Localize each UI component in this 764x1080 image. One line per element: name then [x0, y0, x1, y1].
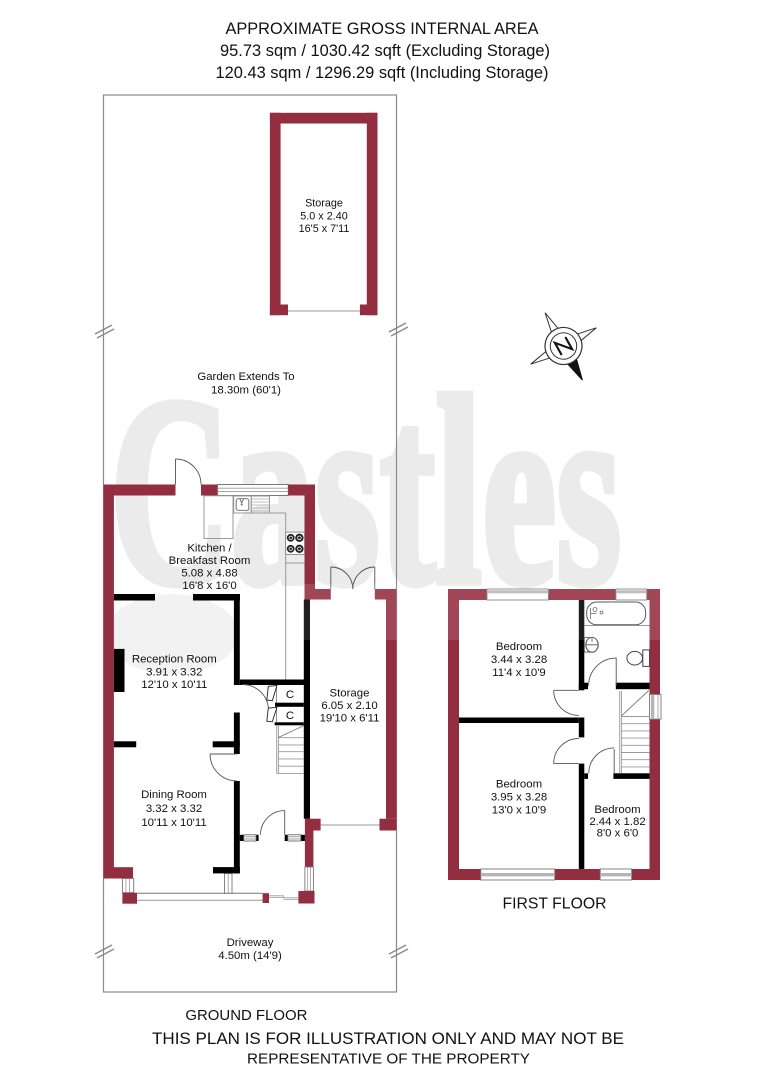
svg-text:10'11 x 10'11: 10'11 x 10'11 — [141, 817, 206, 829]
svg-text:GROUND FLOOR: GROUND FLOOR — [185, 1007, 307, 1024]
svg-text:120.43 sqm / 1296.29 sqft (Inc: 120.43 sqm / 1296.29 sqft (Including Sto… — [216, 64, 549, 82]
svg-text:13'0 x 10'9: 13'0 x 10'9 — [492, 805, 546, 817]
svg-text:16'8 x 16'0: 16'8 x 16'0 — [182, 580, 236, 592]
svg-text:4.50m (14'9): 4.50m (14'9) — [218, 950, 282, 962]
svg-text:16'5 x 7'11: 16'5 x 7'11 — [299, 223, 350, 235]
svg-text:11'4 x 10'9: 11'4 x 10'9 — [492, 667, 546, 679]
svg-text:5.0 x 2.40: 5.0 x 2.40 — [300, 210, 347, 222]
svg-text:6.05 x 2.10: 6.05 x 2.10 — [321, 700, 377, 712]
svg-text:18.30m (60'1): 18.30m (60'1) — [211, 385, 281, 397]
svg-text:Driveway: Driveway — [227, 937, 274, 949]
svg-text:19'10 x 6'11: 19'10 x 6'11 — [320, 713, 380, 725]
svg-text:Bedroom: Bedroom — [594, 804, 640, 816]
svg-text:Dining Room: Dining Room — [141, 789, 207, 801]
svg-text:APPROXIMATE GROSS INTERNAL ARE: APPROXIMATE GROSS INTERNAL AREA — [226, 20, 539, 38]
svg-text:12'10 x 10'11: 12'10 x 10'11 — [141, 679, 207, 691]
svg-text:8'0 x 6'0: 8'0 x 6'0 — [597, 828, 639, 840]
svg-text:5.08 x 4.88: 5.08 x 4.88 — [181, 567, 237, 579]
svg-text:3.95 x 3.28: 3.95 x 3.28 — [491, 792, 547, 804]
svg-text:REPRESENTATIVE OF THE PROPERTY: REPRESENTATIVE OF THE PROPERTY — [247, 1051, 530, 1068]
svg-text:C: C — [286, 710, 294, 722]
svg-text:Bedroom: Bedroom — [496, 641, 542, 653]
svg-text:FIRST FLOOR: FIRST FLOOR — [503, 896, 607, 913]
svg-text:3.91 x 3.32: 3.91 x 3.32 — [146, 666, 202, 678]
svg-text:2.44 x 1.82: 2.44 x 1.82 — [589, 816, 645, 828]
svg-text:Kitchen /: Kitchen / — [187, 542, 232, 554]
svg-text:C: C — [286, 689, 294, 701]
svg-text:Storage: Storage — [305, 198, 343, 210]
svg-text:3.32 x 3.32: 3.32 x 3.32 — [146, 803, 202, 815]
svg-text:Breakfast Room: Breakfast Room — [169, 555, 251, 567]
svg-text:THIS PLAN IS FOR ILLUSTRATION: THIS PLAN IS FOR ILLUSTRATION ONLY AND M… — [152, 1029, 624, 1048]
svg-text:Garden Extends To: Garden Extends To — [197, 371, 294, 383]
svg-text:3.44 x 3.28: 3.44 x 3.28 — [491, 654, 547, 666]
svg-text:Reception Room: Reception Room — [132, 654, 217, 666]
svg-text:95.73 sqm / 1030.42 sqft (Excl: 95.73 sqm / 1030.42 sqft (Excluding Stor… — [220, 42, 550, 60]
svg-text:Bedroom: Bedroom — [496, 779, 542, 791]
svg-text:Storage: Storage — [330, 688, 370, 700]
